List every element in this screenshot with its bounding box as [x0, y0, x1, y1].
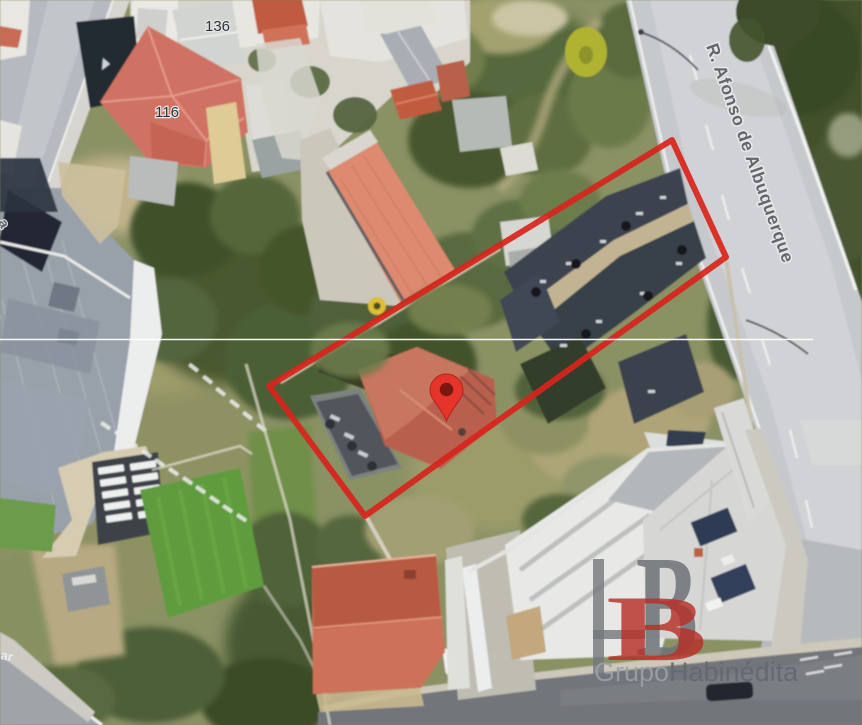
- svg-text:GrupoHabinédita: GrupoHabinédita: [594, 657, 799, 687]
- svg-text:116: 116: [155, 104, 179, 121]
- svg-text:136: 136: [205, 18, 230, 35]
